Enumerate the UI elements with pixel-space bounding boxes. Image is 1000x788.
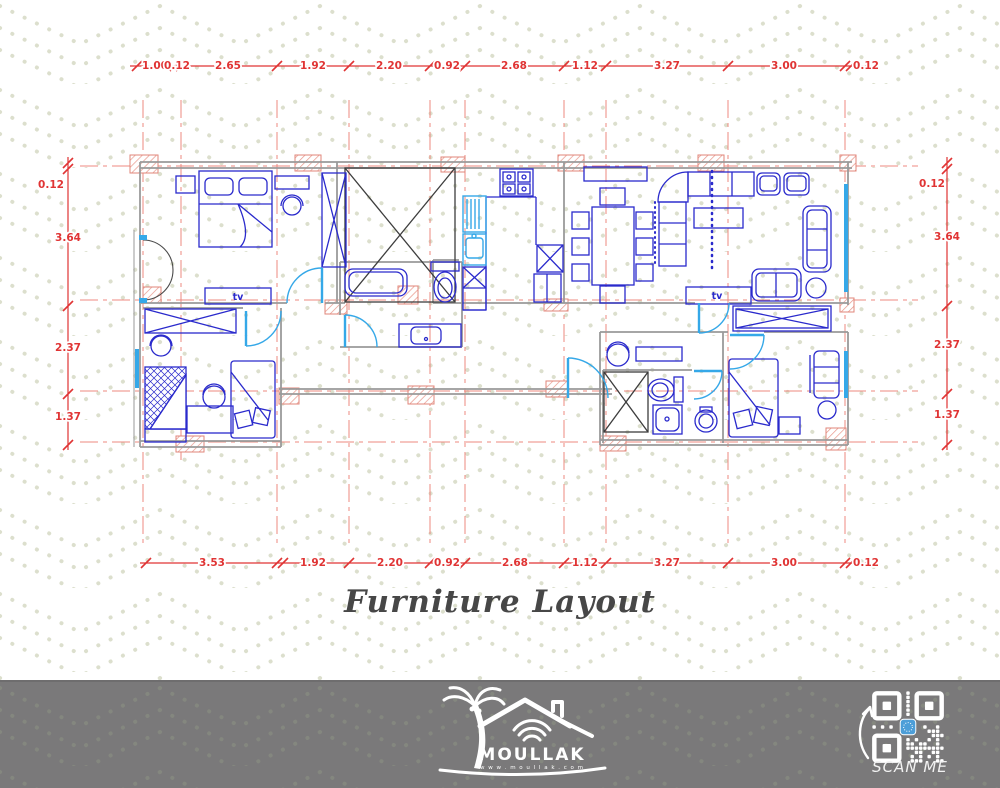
dim-label: 2.68 — [502, 557, 528, 569]
floor-plan-drawing: tv tv 1.000.122.651.922.200.922.681.123.… — [0, 0, 1000, 788]
scan-me-label: SCAN ME — [865, 758, 955, 776]
dim-label: 3.00 — [771, 557, 797, 569]
tv-label-living: tv — [712, 291, 724, 302]
dim-label: 2.37 — [934, 339, 960, 351]
dim-label: 2.37 — [55, 342, 81, 354]
page-title: Furniture Layout — [0, 584, 1000, 620]
dim-label: 3.64 — [934, 231, 960, 243]
dim-label: 1.92 — [300, 60, 326, 72]
dim-label: 3.64 — [55, 232, 81, 244]
moullak-logo: MOULLAK w w w . m o u l l a k . c o m — [420, 684, 620, 782]
dim-label: 1.92 — [300, 557, 326, 569]
dim-label: 0.12 — [919, 178, 945, 190]
house-roof-icon — [480, 700, 592, 736]
background-chevron-pattern — [0, 0, 1000, 680]
dim-label: 2.68 — [501, 60, 527, 72]
wifi-arcs-icon — [514, 721, 550, 740]
dim-label: 0.12 — [38, 179, 64, 191]
dim-label: 0.12 — [853, 60, 879, 72]
dim-label: 1.37 — [55, 411, 81, 423]
brand-website: w w w . m o u l l a k . c o m — [480, 765, 584, 771]
qr-code — [872, 691, 944, 763]
dim-label: 0.12 — [164, 60, 190, 72]
dim-label: 3.00 — [771, 60, 797, 72]
dim-label: 1.12 — [572, 60, 598, 72]
dim-label: 2.20 — [376, 60, 402, 72]
dim-label: 3.53 — [199, 557, 225, 569]
dim-label: 0.12 — [853, 557, 879, 569]
dim-label: 3.27 — [654, 60, 680, 72]
dim-label: 3.27 — [654, 557, 680, 569]
dim-label: 1.37 — [934, 409, 960, 421]
dim-label: 0.92 — [434, 557, 460, 569]
curved-arrow-icon — [854, 704, 880, 762]
dim-label: 2.65 — [215, 60, 241, 72]
dim-label: 0.92 — [434, 60, 460, 72]
footer: MOULLAK w w w . m o u l l a k . c o m SC… — [0, 680, 1000, 788]
dim-label: 2.20 — [377, 557, 403, 569]
brand-name: MOULLAK — [478, 745, 585, 765]
dim-label: 1.12 — [572, 557, 598, 569]
tv-label-bedroom1: tv — [233, 292, 245, 303]
poster-canvas: tv tv 1.000.122.651.922.200.922.681.123.… — [0, 0, 1000, 788]
